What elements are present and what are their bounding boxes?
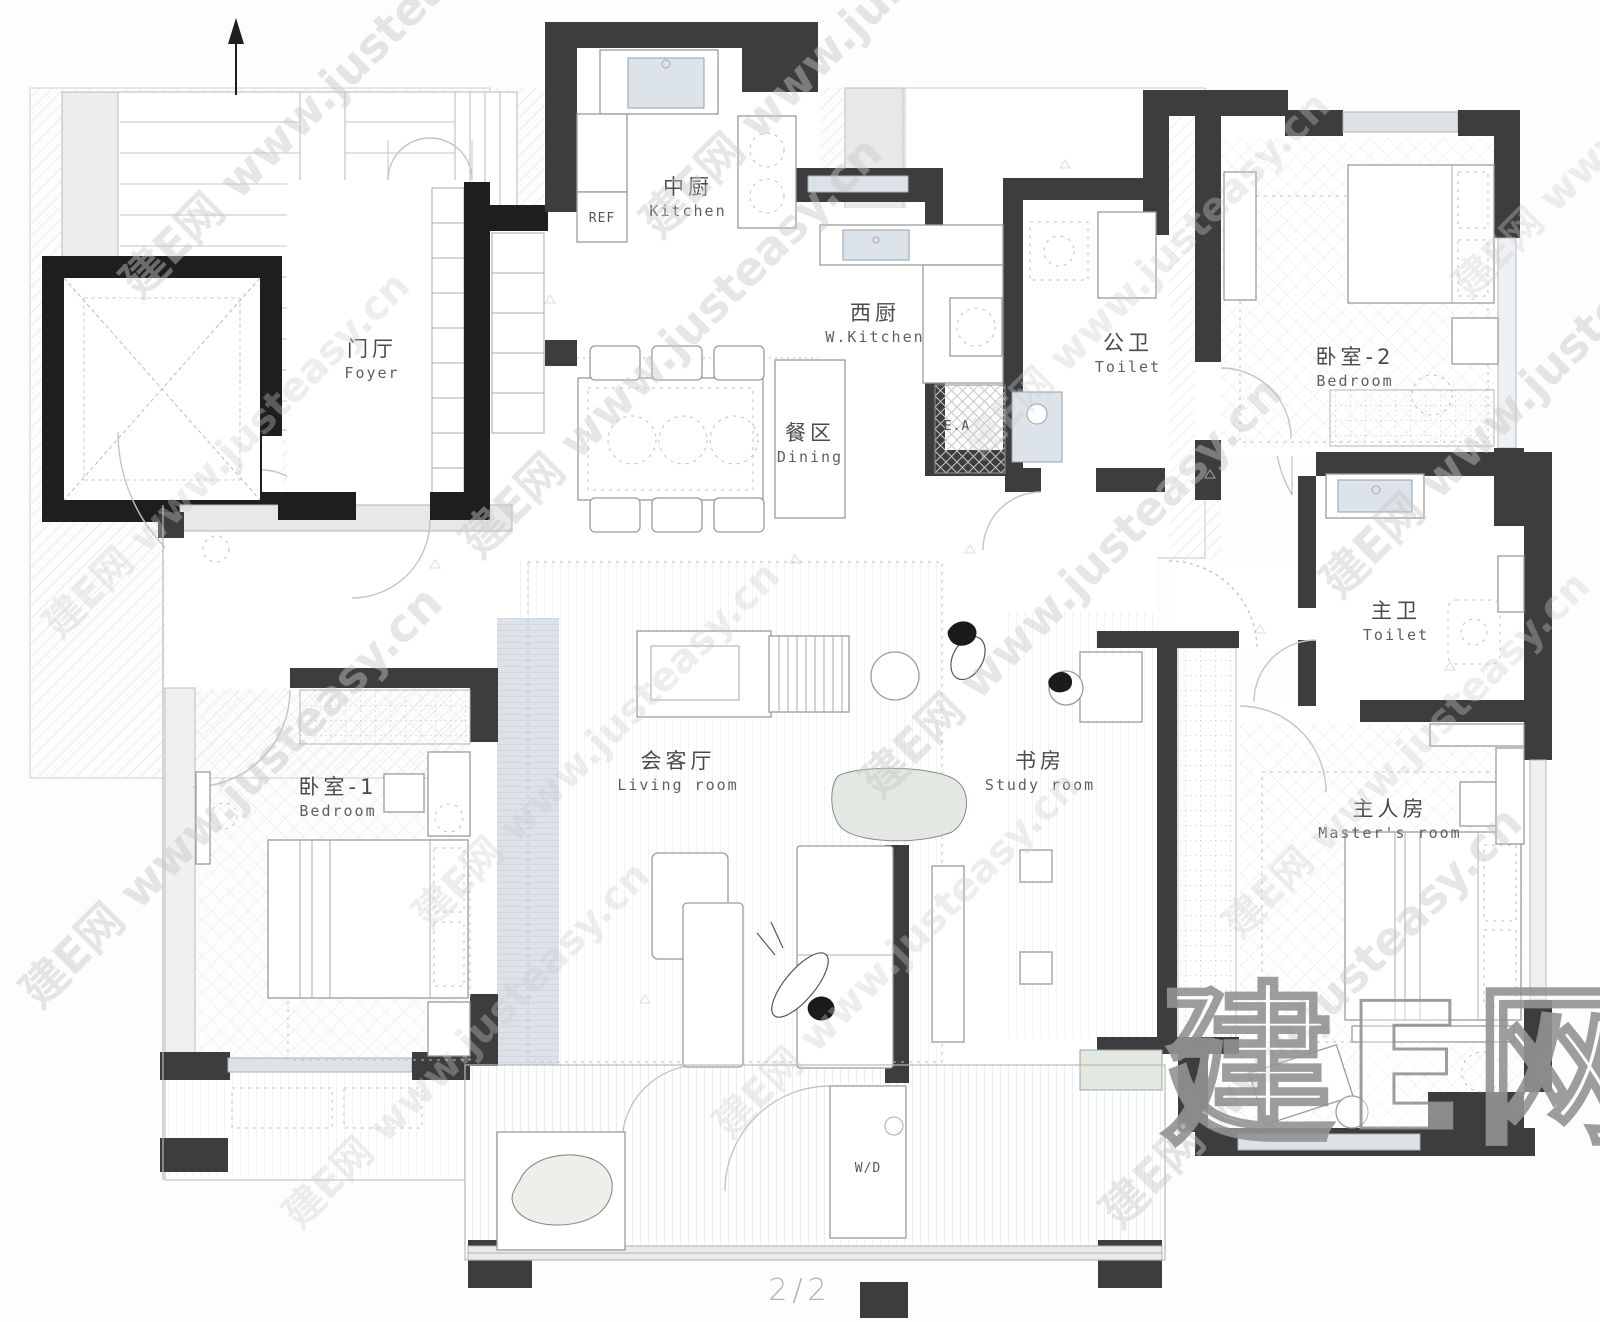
window bbox=[808, 176, 908, 192]
nightstand bbox=[1452, 318, 1498, 364]
desk bbox=[1080, 652, 1142, 722]
pouf bbox=[871, 652, 919, 700]
master-label-en: Master's room bbox=[1318, 824, 1461, 842]
window-bay bbox=[1498, 238, 1516, 448]
toilet-label-cn: 公卫 bbox=[1103, 331, 1153, 355]
side-table bbox=[384, 774, 424, 812]
living-west-floor bbox=[165, 520, 465, 690]
dining-label-cn: 餐区 bbox=[785, 421, 835, 445]
dressing-table bbox=[196, 772, 210, 864]
floor-mat bbox=[1080, 1050, 1162, 1090]
shower bbox=[1098, 212, 1156, 298]
bedroom2-label-cn: 卧室-2 bbox=[1316, 345, 1395, 369]
wardrobe1 bbox=[300, 690, 470, 744]
wkitchen-label-en: W.Kitchen bbox=[825, 328, 924, 346]
bedroom1-label-cn: 卧室-1 bbox=[299, 775, 378, 799]
foyer-label-cn: 门厅 bbox=[347, 337, 397, 361]
stairs-up-arrow bbox=[228, 18, 244, 95]
shelf-box bbox=[1020, 952, 1052, 984]
island-cooktop bbox=[950, 298, 1002, 356]
slat-bench bbox=[769, 636, 849, 712]
dining-chair bbox=[714, 498, 764, 532]
elevator-shaft bbox=[42, 256, 282, 522]
nightstand bbox=[428, 752, 470, 836]
living-label-cn: 会客厅 bbox=[641, 749, 716, 773]
wkitchen-label-cn: 西厨 bbox=[850, 301, 900, 325]
dining-chair bbox=[590, 346, 640, 380]
kitchen-label-cn: 中厨 bbox=[663, 175, 713, 199]
toilet-fixture bbox=[1012, 392, 1062, 462]
dining-chair bbox=[652, 346, 702, 380]
rug bbox=[832, 768, 967, 841]
window-bay bbox=[1530, 760, 1546, 1000]
dining-table bbox=[578, 378, 763, 500]
living-label-en: Living room bbox=[617, 776, 738, 794]
dining-chair bbox=[590, 498, 640, 532]
stool bbox=[1336, 1096, 1368, 1128]
bed2 bbox=[1348, 165, 1494, 303]
cooktop-counter bbox=[738, 116, 796, 228]
tv-console bbox=[637, 631, 771, 717]
dining-chair bbox=[714, 346, 764, 380]
wardrobe-side bbox=[1496, 748, 1524, 844]
bed-bench bbox=[1352, 1026, 1514, 1042]
wardrobe-top bbox=[1430, 724, 1524, 746]
page-number: 2/2 bbox=[768, 1273, 831, 1308]
master-bed bbox=[1345, 832, 1521, 1020]
dining-label-en: Dining bbox=[777, 448, 843, 466]
wkitchen-sink bbox=[843, 230, 909, 260]
wd-label: W/D bbox=[855, 1161, 881, 1176]
study-label-en: Study room bbox=[985, 776, 1095, 794]
bath-shelf bbox=[1498, 556, 1524, 612]
master-label-cn: 主人房 bbox=[1353, 797, 1428, 821]
bench bbox=[428, 1002, 470, 1056]
closet-corridor bbox=[1178, 648, 1236, 1038]
bath-sink bbox=[1338, 480, 1412, 512]
master-toilet-label-cn: 主卫 bbox=[1371, 599, 1421, 623]
foyer-label-en: Foyer bbox=[344, 364, 399, 382]
chaise bbox=[683, 903, 743, 1067]
elevator-door-gap bbox=[262, 436, 282, 492]
bedroom2-door-gap bbox=[1195, 362, 1221, 440]
toilet-label-en: Toilet bbox=[1095, 358, 1161, 376]
floorplan-svg: 中厨 Kitchen 西厨 W.Kitchen 餐区 Dining 门厅 Foy… bbox=[0, 0, 1600, 1322]
window bbox=[1238, 1134, 1420, 1150]
wardrobe2 bbox=[1330, 390, 1494, 446]
window bbox=[1343, 112, 1458, 132]
kitchen-label-en: Kitchen bbox=[649, 202, 726, 220]
bedroom2-label-en: Bedroom bbox=[1316, 372, 1393, 390]
foyer-east-wall bbox=[464, 182, 490, 520]
ea-label: E.A bbox=[944, 419, 970, 434]
bedroom1-window-bay bbox=[165, 688, 195, 1058]
shelf-box bbox=[1020, 850, 1052, 882]
floorplan-canvas: 中厨 Kitchen 西厨 W.Kitchen 餐区 Dining 门厅 Foy… bbox=[0, 0, 1600, 1322]
bedroom1-label-en: Bedroom bbox=[299, 802, 376, 820]
study-label-cn: 书房 bbox=[1015, 749, 1065, 773]
bed1 bbox=[268, 840, 468, 998]
side-shelf bbox=[932, 866, 964, 1042]
dining-chair bbox=[652, 498, 702, 532]
ref-label: REF bbox=[589, 211, 615, 226]
master-toilet-label-en: Toilet bbox=[1363, 626, 1429, 644]
kitchen-sink bbox=[628, 58, 704, 108]
cabinet bbox=[1224, 172, 1256, 300]
